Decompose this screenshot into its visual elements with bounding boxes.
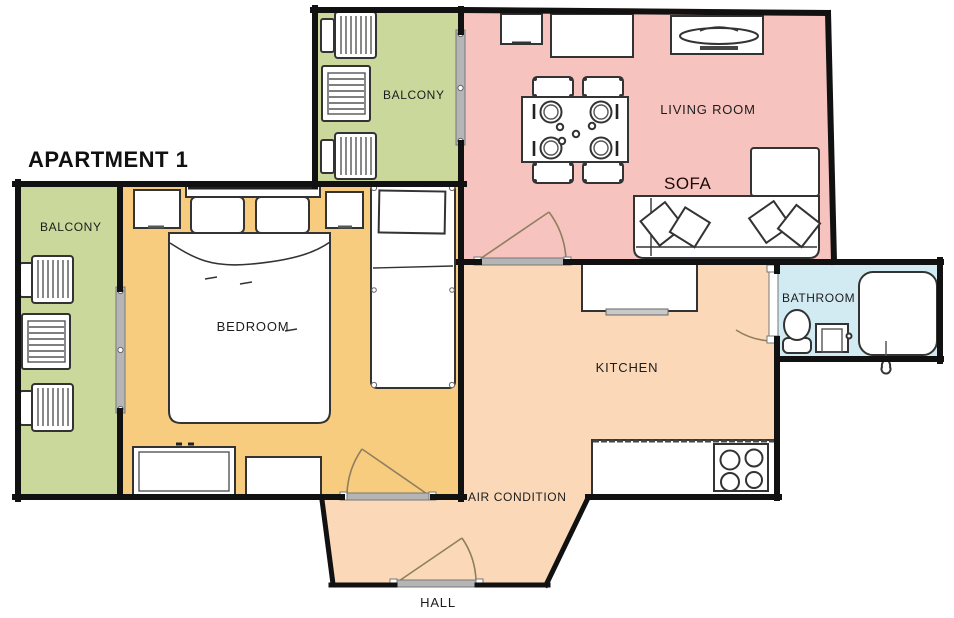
floor-plan: APARTMENT 1 BALCONY BALCONY BEDROOM LIVI… [0,0,954,618]
toilet [783,310,811,353]
balcony-top-furniture [321,12,376,179]
balcony-chair [321,133,376,179]
balcony-chair [20,256,73,303]
plate [591,102,612,123]
apartment-title: APARTMENT 1 [28,147,188,172]
dining-chair [583,77,623,98]
balcony-left-furniture [20,256,73,431]
dining-chair [533,162,573,183]
tv-stand [700,46,738,50]
tv [680,28,758,44]
balcony-top-label: BALCONY [383,88,445,102]
dresser [246,457,321,496]
balcony-table [22,314,70,369]
dining-chair [533,77,573,98]
bedroom-label: BEDROOM [217,319,290,334]
balcony-table [322,66,370,121]
door-living-kitchen [474,257,571,265]
kitchen-island [582,263,697,315]
hall-label: HALL [420,595,456,610]
balcony-chair [20,384,73,431]
door-bathroom [767,265,779,343]
cabinet-large [551,14,633,57]
sofa-label: SOFA [664,174,712,193]
living-room-label: LIVING ROOM [660,102,755,117]
door-bedroom [340,492,436,500]
kitchen-label: KITCHEN [596,360,659,375]
nightstand-right [326,192,363,228]
stove [714,444,768,491]
plate [591,138,612,159]
wardrobe [133,444,235,496]
dining-chair [583,162,623,183]
floor-plan-page: APARTMENT 1 BALCONY BALCONY BEDROOM LIVI… [0,0,954,618]
kitchen-counter [592,440,775,496]
cabinet-small [501,14,542,44]
plate [541,102,562,123]
bathroom-label: BATHROOM [782,291,855,305]
tv-unit [671,16,763,54]
wall [462,10,828,13]
nightstand-left [134,190,180,228]
balcony-left-label: BALCONY [40,220,102,234]
sink [816,324,852,352]
single-bed [371,184,455,388]
dining-table [522,97,628,162]
sliding-door-balcony-left [116,287,125,413]
air-condition-label: AIR CONDITION [468,490,566,504]
balcony-chair [321,12,376,58]
door-hall [390,579,483,587]
sliding-door-balcony-top [456,30,465,145]
